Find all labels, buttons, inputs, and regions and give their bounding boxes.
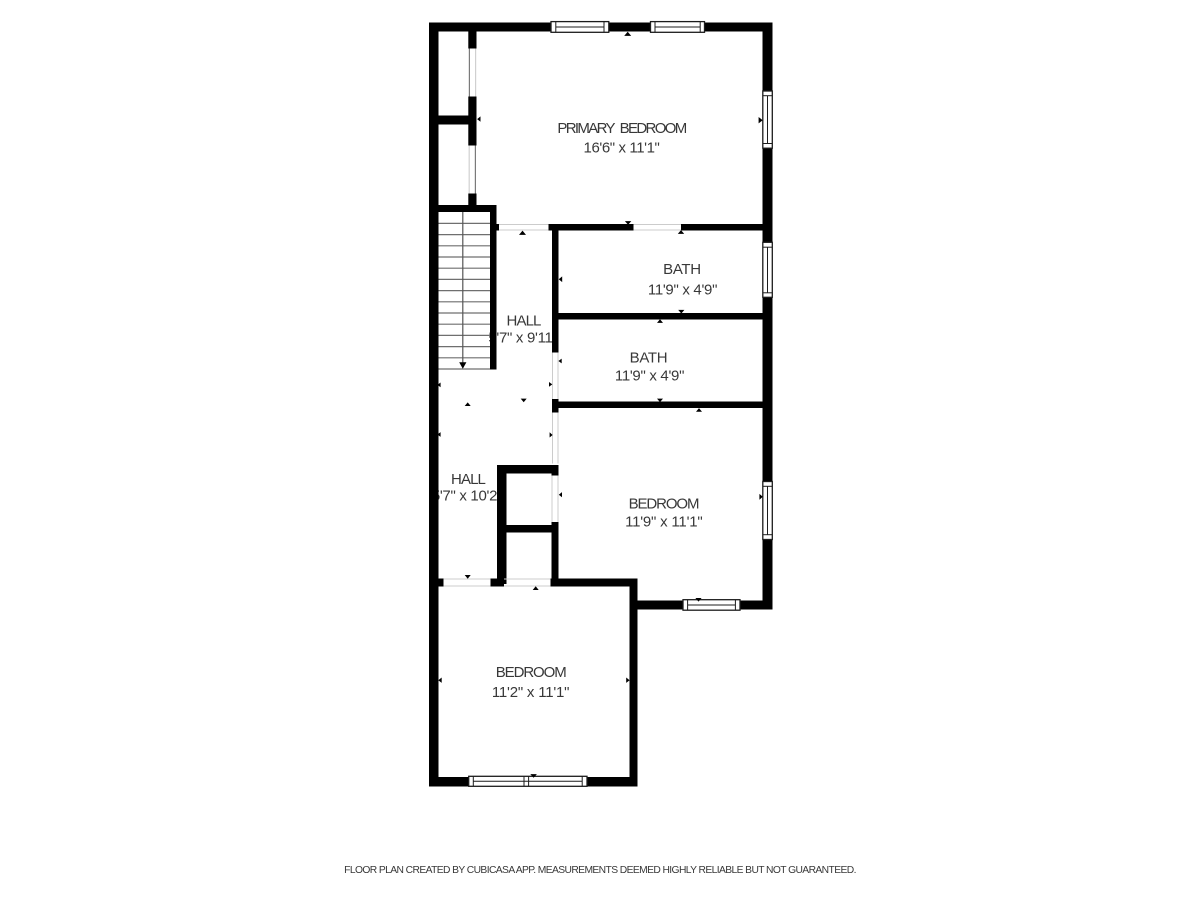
svg-text:HALL: HALL [507, 313, 541, 330]
svg-text:PRIMARY BEDROOM: PRIMARY BEDROOM [557, 120, 686, 137]
svg-text:HALL: HALL [451, 471, 485, 488]
svg-text:FLOOR PLAN CREATED BY CUBICASA: FLOOR PLAN CREATED BY CUBICASA APP. MEAS… [344, 865, 856, 876]
svg-text:BEDROOM: BEDROOM [629, 495, 699, 512]
svg-text:BATH: BATH [630, 349, 668, 366]
svg-text:BEDROOM: BEDROOM [496, 664, 566, 681]
svg-text:BATH: BATH [663, 261, 701, 278]
svg-text:11'2" x 11'1": 11'2" x 11'1" [492, 684, 569, 701]
svg-text:11'9" x 4'9": 11'9" x 4'9" [615, 368, 684, 385]
svg-text:5'7" x 10'2": 5'7" x 10'2" [432, 487, 502, 504]
svg-text:5'7" x 9'11": 5'7" x 9'11" [488, 330, 557, 347]
svg-text:11'9" x 11'1": 11'9" x 11'1" [625, 513, 702, 530]
svg-text:11'9" x 4'9": 11'9" x 4'9" [648, 281, 717, 298]
svg-text:16'6" x 11'1": 16'6" x 11'1" [584, 139, 660, 156]
